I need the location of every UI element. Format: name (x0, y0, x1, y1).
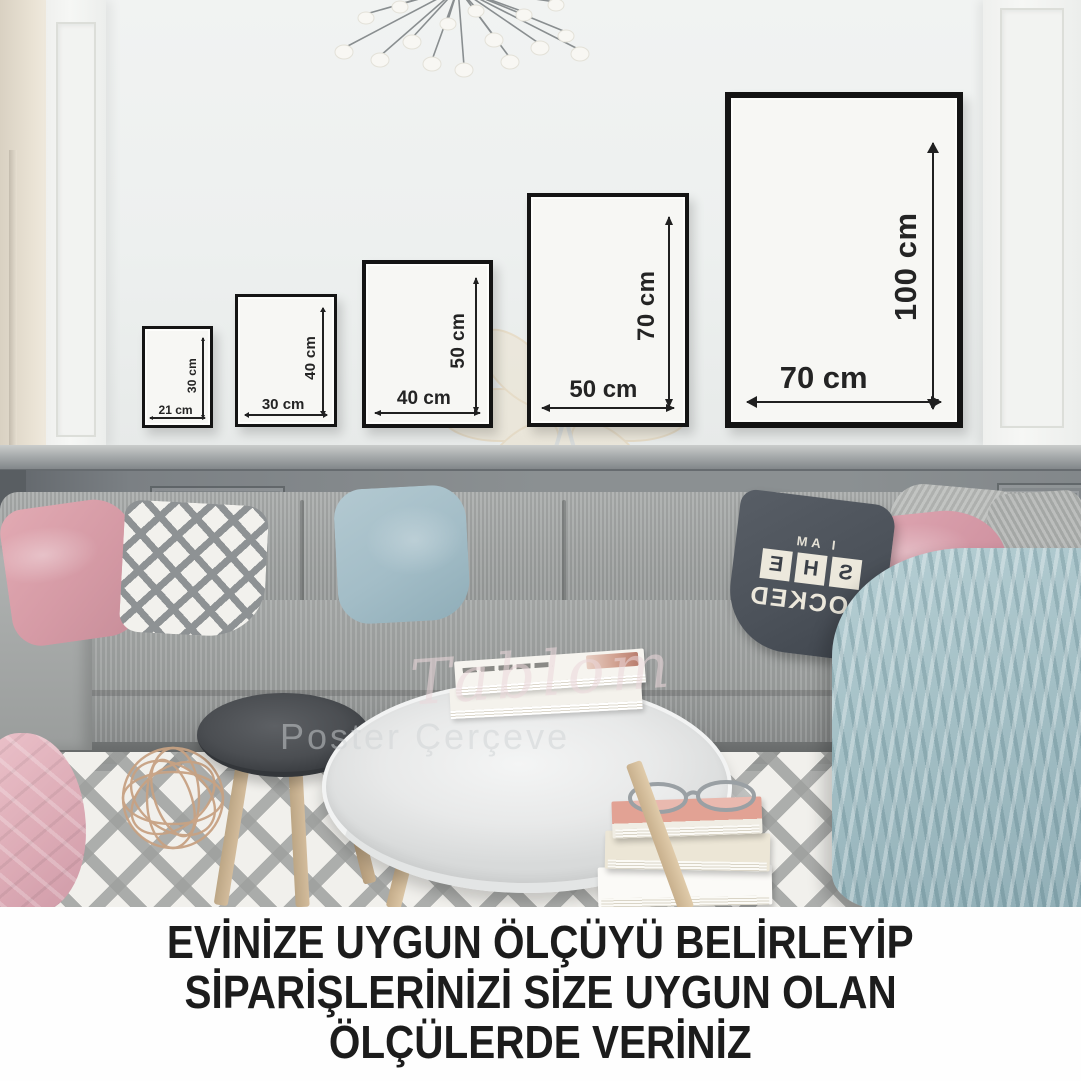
chandelier-light (308, 0, 592, 82)
blue-pillow (333, 484, 472, 626)
book-cover-text (463, 662, 553, 673)
pillow-text-top: I AM (792, 533, 836, 553)
living-room-photo: 30 cm 21 cm 40 cm 30 cm 50 cm 40 cm 70 c… (0, 0, 1081, 907)
chair-rail (0, 445, 1081, 471)
frame-21x30: 30 cm 21 cm (142, 326, 213, 428)
width-label: 30 cm (238, 396, 328, 413)
width-arrow (375, 412, 481, 414)
caption-line-1: EVİNİZE UYGUN ÖLÇÜYÜ BELİRLEYİP (167, 917, 914, 967)
frame-40x50: 50 cm 40 cm (362, 260, 493, 428)
frame-70x100: 100 cm 70 cm (725, 92, 963, 428)
frame-30x40: 40 cm 30 cm (235, 294, 337, 427)
book-cover-art (586, 652, 639, 670)
width-arrow (150, 417, 206, 419)
letter-tile: E (759, 548, 792, 581)
width-label: 70 cm (731, 360, 916, 396)
knit-throw-blanket (832, 548, 1081, 907)
geometric-pattern-pillow (119, 499, 270, 638)
decor-wire-sphere (120, 742, 226, 860)
letter-tile: S (829, 557, 862, 590)
width-arrow (245, 414, 328, 416)
pilaster-panel (1000, 8, 1064, 428)
product-image: 30 cm 21 cm 40 cm 30 cm 50 cm 40 cm 70 c… (0, 0, 1081, 1081)
width-label: 40 cm (366, 388, 482, 410)
caption-line-2: SİPARİŞLERİNİZİ SİZE UYGUN OLAN (184, 967, 896, 1017)
width-label: 50 cm (531, 376, 676, 404)
pilaster-right (983, 0, 1081, 445)
pilaster-panel (56, 22, 96, 437)
width-arrow (747, 401, 941, 403)
pilaster-left (46, 0, 106, 447)
width-label: 21 cm (145, 403, 206, 417)
caption-line-3: ÖLÇÜLERDE VERİNİZ (329, 1017, 752, 1067)
caption-band: EVİNİZE UYGUN ÖLÇÜYÜ BELİRLEYİP SİPARİŞL… (0, 907, 1081, 1081)
height-arrow (932, 143, 934, 409)
width-arrow (542, 407, 674, 409)
letter-tile: H (794, 552, 827, 585)
frame-50x70: 70 cm 50 cm (527, 193, 689, 427)
wall-molding (9, 150, 17, 447)
side-wall (0, 0, 46, 447)
